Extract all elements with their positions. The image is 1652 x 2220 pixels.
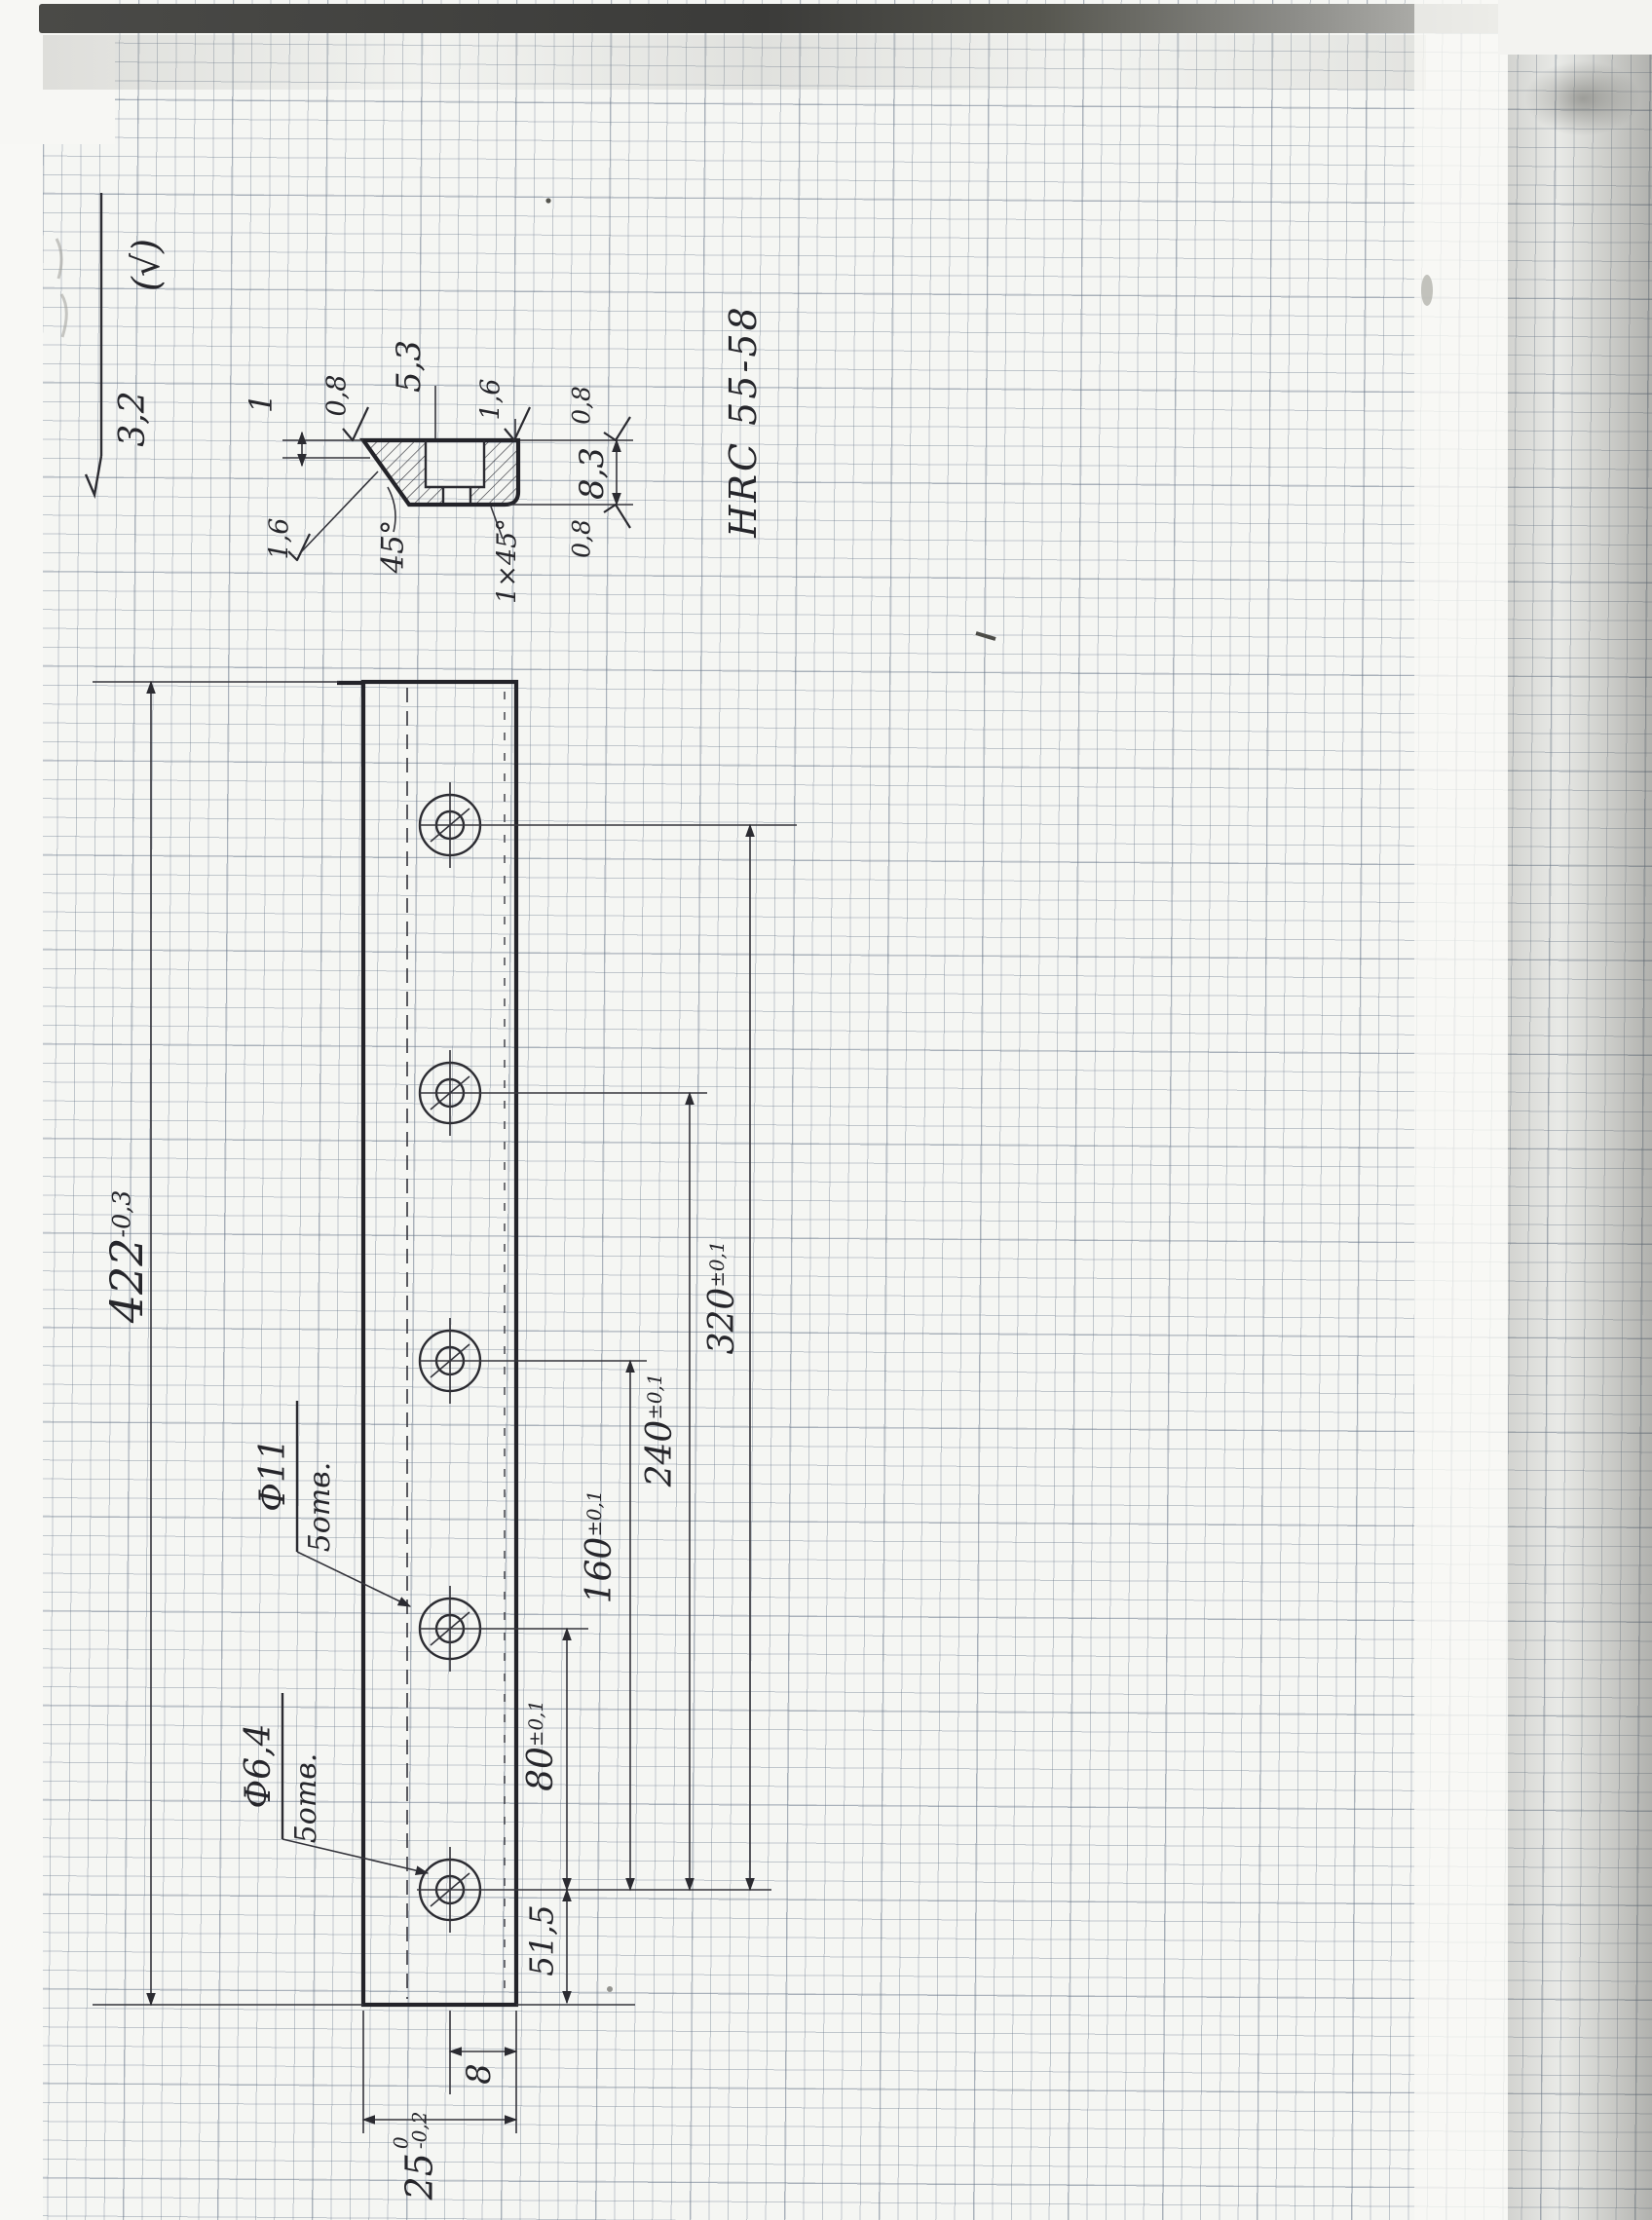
hatch-right [470, 440, 518, 505]
section-roughness-chamfer: 1,6 [267, 518, 293, 560]
section-roughness-height-bottom: 0,8 [570, 519, 594, 558]
dim-160-value: 160 [580, 1537, 619, 1604]
general-roughness-value: 3,2 [116, 391, 151, 446]
dim-240-tolerance: ±0,1 [644, 1373, 666, 1420]
roughness-mark-08-a [604, 417, 630, 440]
label-d64: Ф6,4 [242, 1723, 277, 1808]
section-groove [426, 440, 484, 487]
leader-chamfer-roughness [300, 471, 378, 553]
section-dim-height: 8,3 [576, 447, 609, 500]
section-chamfer-note: 1×45° [495, 518, 521, 604]
main-view [93, 682, 797, 2133]
section-roughness-groove: 1,6 [478, 379, 505, 421]
dim-320-tolerance: ±0,1 [706, 1241, 729, 1288]
dim-25-value: 25 [397, 2153, 440, 2200]
section-dim-1: 1 [245, 394, 277, 413]
section-dim-groove: 5,3 [393, 340, 426, 393]
section-roughness-top: 0,8 [324, 375, 351, 417]
dim-515: 51,5 [526, 1904, 558, 1975]
stray-smudge [1421, 275, 1433, 306]
section-roughness-height-top: 0,8 [570, 386, 594, 425]
dim-422: 422-0,3 [104, 1190, 149, 1324]
stray-dot-2 [607, 1986, 613, 1992]
dim-320: 320±0,1 [705, 1241, 740, 1355]
dim-160: 160±0,1 [582, 1490, 618, 1604]
bar-outline [363, 682, 516, 2005]
stray-dot [545, 198, 550, 203]
stray-mark [976, 633, 995, 639]
dim-320-value: 320 [702, 1288, 742, 1355]
dim-80-tolerance: ±0,1 [525, 1700, 547, 1747]
section-slot [443, 487, 470, 503]
hardness-note: HRC 55-58 [725, 304, 762, 537]
dim-80: 80±0,1 [524, 1700, 559, 1791]
label-d11-qty: 5отв. [306, 1462, 335, 1553]
label-d11: Ф11 [256, 1438, 291, 1512]
dim-25-tolerance: 0-0,2 [393, 2112, 430, 2150]
dim-80-value: 80 [521, 1747, 561, 1791]
edge-pencil-marks [56, 239, 66, 337]
dim-25: 250-0,2 [393, 2112, 438, 2201]
general-roughness-symbol [86, 193, 101, 495]
dim-422-tolerance: -0,3 [107, 1190, 135, 1238]
section-angle: 45° [379, 520, 409, 574]
dim-25-tol-lower: -0,2 [411, 2112, 430, 2150]
drawing-linework [0, 0, 1652, 2220]
dim-160-tolerance: ±0,1 [583, 1490, 606, 1537]
general-roughness-bracket: (√) [128, 239, 165, 291]
leader-d11 [297, 1552, 410, 1606]
leader-d64 [282, 1839, 428, 1873]
label-d64-qty: 5отв. [292, 1753, 321, 1844]
scanned-drawing-sheet: 3,2 (√) 1 0,8 5,3 1,6 8,3 0,8 0,8 1,6 45… [0, 0, 1652, 2220]
roughness-mark-16-top [505, 407, 530, 440]
dim-240-value: 240 [640, 1420, 680, 1487]
dim-8: 8 [463, 2063, 496, 2085]
dim-422-value: 422 [100, 1237, 153, 1323]
roughness-mark-08-b [604, 505, 630, 528]
dim-240: 240±0,1 [643, 1373, 678, 1487]
